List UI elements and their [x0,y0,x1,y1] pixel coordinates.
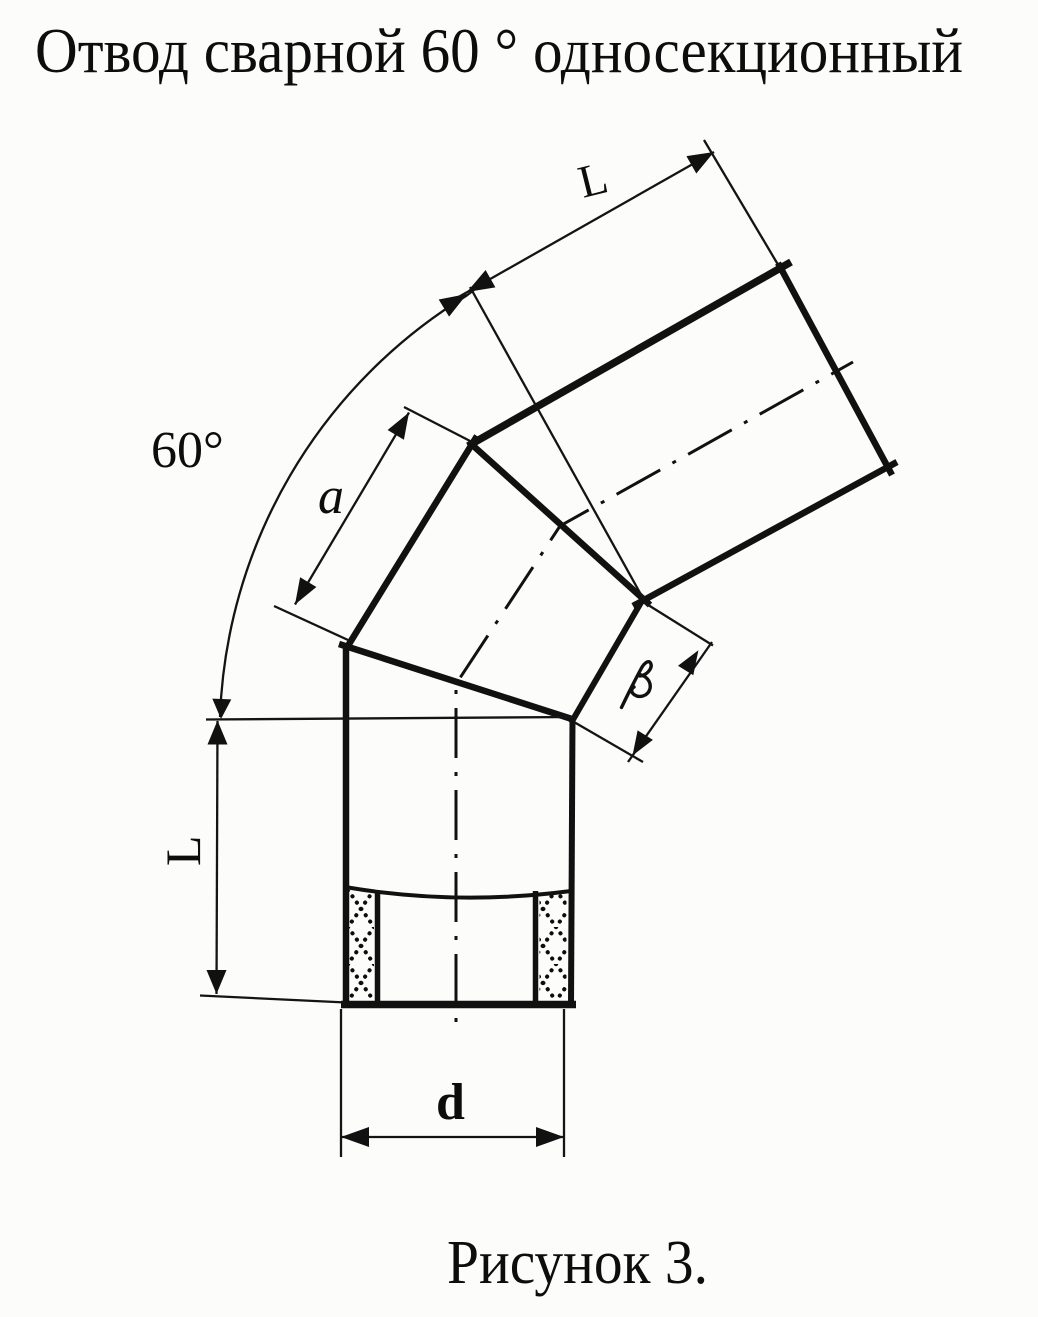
svg-text:d: d [436,1074,465,1131]
svg-text:60°: 60° [151,422,224,479]
svg-text:L: L [155,835,211,866]
svg-text:Рисунок 3.: Рисунок 3. [447,1229,708,1297]
svg-text:Отвод сварной 60 ° односекцион: Отвод сварной 60 ° односекционный [35,15,963,86]
svg-text:L: L [573,151,613,207]
svg-text:a: a [318,468,344,525]
